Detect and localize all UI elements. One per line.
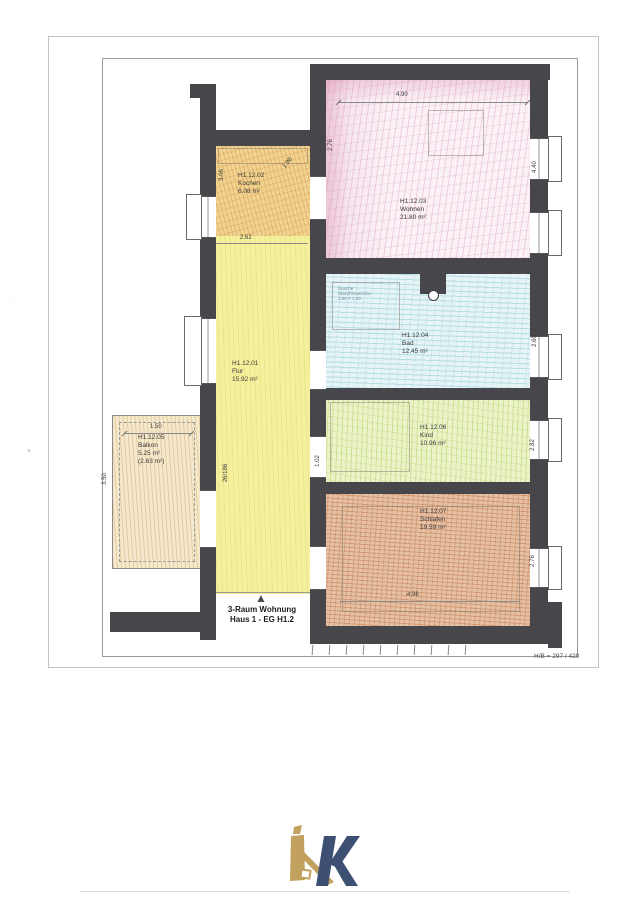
dim-flur-door: 26/186 bbox=[223, 464, 229, 482]
window-flur bbox=[200, 318, 216, 384]
window-sill-kochen bbox=[186, 194, 202, 240]
room-area: 5.25 m² bbox=[138, 450, 164, 458]
room-flur bbox=[212, 236, 312, 594]
dim-kind-right: 2.82 bbox=[530, 439, 536, 451]
entrance-arrow-icon: ▲ bbox=[255, 592, 267, 604]
furniture-outline-kind bbox=[330, 402, 410, 472]
plumbing-pipe-symbol bbox=[428, 290, 439, 301]
door-wohnen bbox=[310, 176, 326, 220]
room-area: 21.80 m² bbox=[400, 214, 426, 222]
dim-kochen-left: 3.06 bbox=[219, 169, 225, 181]
bad-fixture-note: Dusche Waschmaschine 1.08 × 1.20 bbox=[338, 286, 371, 301]
room-id: H1.12.01 bbox=[232, 360, 258, 368]
scanned-floorplan-page: H/B = 297 / 420 bbox=[0, 0, 636, 900]
dimline-wohnen-top bbox=[338, 102, 528, 103]
window-sill-schlafen bbox=[548, 546, 562, 590]
room-name: Kind bbox=[420, 432, 446, 440]
room-id: H1.12.04 bbox=[402, 332, 428, 340]
room-name: Wohnen bbox=[400, 206, 426, 214]
scan-edge-line bbox=[80, 891, 570, 892]
room-label-kind: H1.12.06 Kind 10.96 m² bbox=[420, 424, 446, 448]
wall-top-right-wing bbox=[310, 64, 550, 80]
dim-bad-right: 2.60 bbox=[532, 335, 538, 347]
wall-bad-kind bbox=[326, 388, 530, 400]
dim-wohnen-top: 4.90 bbox=[396, 92, 408, 98]
room-id: H1.12.05 bbox=[138, 434, 164, 442]
room-label-bad: H1.12.04 Bad 12.45 m² bbox=[402, 332, 428, 356]
wall-bottom-left-stub bbox=[110, 612, 206, 632]
dim-wohnen-right: 4.40 bbox=[532, 161, 538, 173]
plan-title-line2: Haus 1 - EG H1.2 bbox=[214, 615, 310, 625]
wall-right-extension bbox=[548, 602, 562, 648]
room-name: Bad bbox=[402, 340, 428, 348]
window-kochen bbox=[200, 196, 216, 238]
room-area: 10.96 m² bbox=[420, 440, 446, 448]
window-wohnen-2 bbox=[530, 212, 548, 254]
room-id: H1.12.07 bbox=[420, 508, 446, 516]
dim-kochen-bottom: 2.62 bbox=[240, 235, 252, 241]
room-area: 6.08 m² bbox=[238, 188, 264, 196]
dim-balkon-left: 3.50 bbox=[102, 473, 108, 485]
dim-balkon-top: 1.50 bbox=[150, 424, 162, 430]
window-sill-wohnen-1 bbox=[548, 136, 562, 182]
dim-kind-bottom: 1.02 bbox=[315, 455, 321, 467]
dim-wohnen-left: 2.76 bbox=[328, 139, 334, 151]
room-label-schlafen: H1.12.07 Schlafen 19.59 m² bbox=[420, 508, 446, 532]
wall-wohnen-bad bbox=[326, 258, 530, 274]
door-bad bbox=[310, 350, 326, 390]
furniture-outline-wohnen bbox=[428, 110, 484, 156]
wall-kind-schlafen bbox=[326, 482, 530, 494]
sheet-format-label: H/B = 297 / 420 bbox=[534, 653, 579, 660]
room-area-counted: (2.63 m²) bbox=[138, 458, 164, 466]
room-area: 12.45 m² bbox=[402, 348, 428, 356]
room-area: 15.92 m² bbox=[232, 376, 258, 384]
dim-schlafen-bottom: 4.96 bbox=[407, 592, 419, 598]
door-schlafen bbox=[310, 546, 326, 590]
wall-bottom bbox=[326, 626, 530, 644]
dimline-schlafen-bottom bbox=[340, 601, 520, 602]
window-sill-wohnen-2 bbox=[548, 210, 562, 256]
room-id: H1.12.03 bbox=[400, 198, 426, 206]
room-label-balkon: H1.12.05 Balkon 5.25 m² (2.63 m²) bbox=[138, 434, 164, 466]
wall-top-left-wing bbox=[200, 130, 312, 146]
room-label-flur: H1.12.01 Flur 15.92 m² bbox=[232, 360, 258, 384]
k-house-logo-icon bbox=[278, 824, 362, 890]
scan-speck: × bbox=[27, 448, 31, 455]
window-wohnen-1 bbox=[530, 138, 548, 180]
room-area: 19.59 m² bbox=[420, 524, 446, 532]
plan-title: 3-Raum Wohnung Haus 1 - EG H1.2 bbox=[214, 605, 310, 624]
room-label-wohnen: H1.12.03 Wohnen 21.80 m² bbox=[400, 198, 426, 222]
window-sill-kind bbox=[548, 418, 562, 462]
room-name: Balkon bbox=[138, 442, 164, 450]
room-label-kochen: H1.12.02 Kochen 6.08 m² bbox=[238, 172, 264, 196]
room-name: Kochen bbox=[238, 180, 264, 188]
dim-schlafen-right: 2.76 bbox=[530, 555, 536, 567]
bad-note-line: 1.08 × 1.20 bbox=[338, 296, 371, 301]
dimline-kochen-bottom bbox=[216, 243, 308, 244]
room-id: H1.12.02 bbox=[238, 172, 264, 180]
door-balkon bbox=[200, 490, 216, 548]
room-name: Flur bbox=[232, 368, 258, 376]
scan-speck: · bbox=[12, 296, 14, 303]
kitchen-counter-outline bbox=[218, 148, 308, 164]
window-sill-bad bbox=[548, 334, 562, 380]
room-id: H1.12.06 bbox=[420, 424, 446, 432]
plan-title-line1: 3-Raum Wohnung bbox=[214, 605, 310, 615]
window-sill-flur bbox=[184, 316, 202, 386]
room-name: Schlafen bbox=[420, 516, 446, 524]
